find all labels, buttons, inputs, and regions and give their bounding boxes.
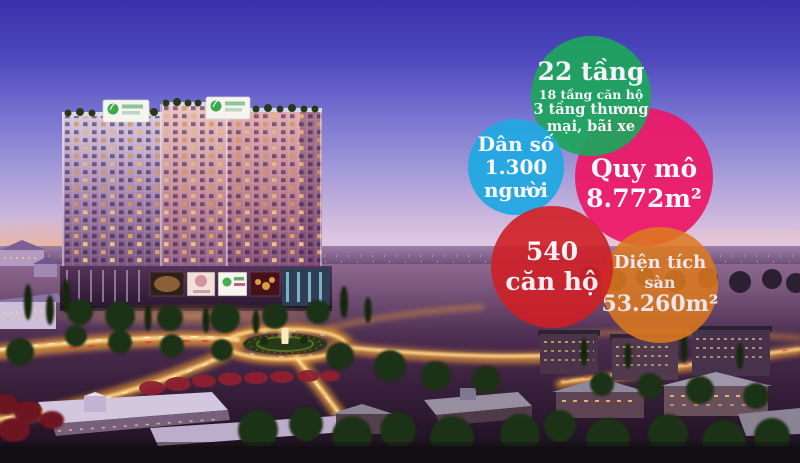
bubble-line: 3 tầng thương [533, 102, 648, 118]
bubble-line: căn hộ [505, 267, 598, 297]
bubble-line: 1.300 [485, 156, 548, 179]
bubble-title: 22 tầng [538, 58, 645, 85]
monument [282, 328, 289, 344]
bubble-line: 18 tầng căn hộ [539, 88, 643, 102]
bubble-line: Dân số [478, 133, 554, 156]
bottom-bar [0, 446, 800, 463]
billboard-screens [150, 272, 280, 296]
leaf-logo-icon [223, 278, 232, 287]
bubble-line: 540 [526, 237, 578, 267]
stat-bubble-population: Dân số 1.300 người [468, 119, 564, 215]
rooftop-sign-left [103, 100, 149, 122]
main-building [40, 97, 350, 329]
stat-bubble-apartments: 540 căn hộ [491, 206, 613, 328]
bubble-line: sàn [644, 274, 675, 291]
promo-infographic: Quy mô 8.772m² 22 tầng 18 tầng căn hộ 3 … [0, 0, 800, 463]
stat-bubble-floor-area: Diện tích sàn 53.260m² [602, 227, 718, 343]
bubble-line: mại, bãi xe [547, 119, 635, 135]
bubble-line: 8.772m² [586, 184, 702, 214]
bubble-line: Quy mô [591, 154, 697, 184]
rooftop-sign-right [206, 97, 250, 119]
bubble-line: 53.260m² [601, 293, 718, 317]
bubble-line: người [484, 179, 548, 202]
bubble-line: Diện tích [614, 253, 706, 272]
